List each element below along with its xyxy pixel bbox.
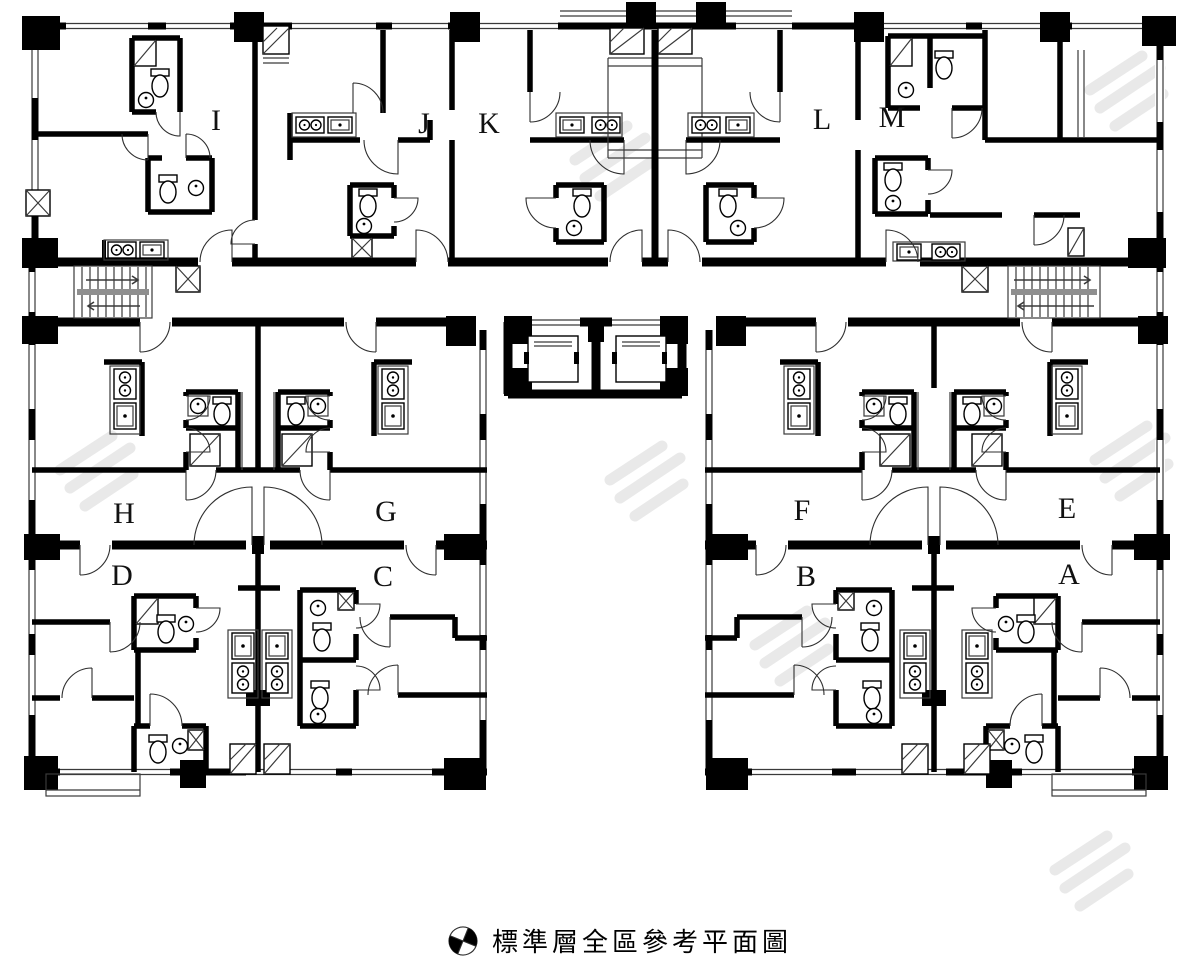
- kitchen-sink-icon: [382, 403, 404, 429]
- toilet-icon: [573, 189, 591, 217]
- caption-text: 標準層全區參考平面圖: [492, 928, 792, 957]
- kitchen-sink-icon: [140, 242, 164, 258]
- caption: 標準層全區參考平面圖: [445, 923, 792, 959]
- toilet-icon: [863, 681, 881, 709]
- stove-icon: [266, 663, 288, 693]
- toilet-icon: [1017, 615, 1035, 643]
- kitchen-sink-icon: [266, 633, 288, 659]
- sink-icon: [731, 221, 746, 236]
- sink-icon: [999, 617, 1014, 632]
- unit-label-b: B: [796, 560, 816, 593]
- kitchen-sink-icon: [904, 633, 926, 659]
- kitchen-sink-icon: [726, 117, 750, 133]
- elevator-car: [528, 336, 578, 382]
- stove-icon: [788, 369, 810, 399]
- unit-label-e: E: [1058, 492, 1076, 525]
- unit-b-interior: [705, 545, 954, 774]
- kitchen-sink-icon: [1056, 403, 1078, 429]
- unit-j-interior: [263, 26, 448, 262]
- toilet-icon: [149, 735, 167, 763]
- toilet-icon: [861, 623, 879, 651]
- kitchen-sink-icon: [560, 117, 584, 133]
- unit-label-f: F: [794, 494, 811, 527]
- sink-icon: [173, 739, 188, 754]
- duct-right: [962, 266, 988, 292]
- stove-icon: [232, 663, 254, 693]
- unit-label-d: D: [111, 559, 133, 592]
- stairs-left: [74, 266, 152, 318]
- toilet-icon: [213, 397, 231, 425]
- toilet-icon: [151, 69, 169, 97]
- unit-label-m: M: [879, 101, 906, 134]
- toilet-icon: [935, 51, 953, 79]
- unit-h-interior: [32, 322, 300, 545]
- duct-left: [176, 266, 200, 292]
- toilet-icon: [1025, 735, 1043, 763]
- unit-d-interior: [32, 545, 280, 796]
- kl-vent-zone: [608, 28, 702, 262]
- sink-icon: [139, 93, 154, 108]
- sink-icon: [867, 601, 882, 616]
- stove-icon: [692, 117, 720, 133]
- sink-icon: [899, 83, 914, 98]
- kitchen-sink-icon: [114, 403, 136, 429]
- toilet-icon: [884, 163, 902, 191]
- unit-label-h: H: [113, 497, 135, 530]
- kitchen-sink-icon: [788, 403, 810, 429]
- sink-icon: [867, 709, 882, 724]
- unit-label-i: I: [211, 104, 221, 137]
- sink-icon: [311, 399, 326, 414]
- stove-icon: [1056, 369, 1078, 399]
- sink-icon: [311, 709, 326, 724]
- sink-icon: [886, 196, 901, 211]
- toilet-icon: [963, 397, 981, 425]
- toilet-icon: [311, 681, 329, 709]
- unit-label-c: C: [373, 560, 393, 593]
- sink-icon: [987, 399, 1002, 414]
- unit-label-l: L: [813, 103, 831, 136]
- toilet-icon: [889, 397, 907, 425]
- north-compass-icon: [445, 923, 481, 959]
- floor-plan-canvas: I J K L M H G F E D C B A 標準層全區參考平面圖: [0, 0, 1200, 967]
- stairs-right: [1008, 266, 1100, 318]
- toilet-icon: [313, 623, 331, 651]
- sink-icon: [179, 617, 194, 632]
- stove-icon: [382, 369, 404, 399]
- stove-icon: [114, 369, 136, 399]
- sink-icon: [867, 399, 882, 414]
- toilet-icon: [359, 189, 377, 217]
- unit-k-interior: [452, 30, 642, 262]
- stove-icon: [592, 117, 620, 133]
- sink-icon: [189, 181, 204, 196]
- stove-icon: [932, 244, 960, 260]
- toilet-icon: [719, 189, 737, 217]
- toilet-icon: [157, 615, 175, 643]
- unit-i-interior: [26, 30, 255, 262]
- sink-icon: [357, 219, 372, 234]
- unit-label-k: K: [478, 107, 500, 140]
- unit-label-a: A: [1058, 558, 1080, 591]
- kitchen-sink-icon: [966, 633, 988, 659]
- elevator-car: [616, 336, 666, 382]
- sink-icon: [567, 221, 582, 236]
- stove-icon: [108, 242, 136, 258]
- stove-icon: [904, 663, 926, 693]
- stove-icon: [296, 117, 324, 133]
- elevator-core: [504, 316, 688, 396]
- sink-icon: [1005, 739, 1020, 754]
- toilet-icon: [159, 175, 177, 203]
- unit-label-j: J: [418, 107, 430, 140]
- kitchen-sink-icon: [232, 633, 254, 659]
- sink-icon: [191, 399, 206, 414]
- stove-icon: [966, 663, 988, 693]
- kitchen-sink-icon: [328, 117, 352, 133]
- sink-icon: [311, 601, 326, 616]
- toilet-icon: [287, 397, 305, 425]
- floor-plan-page: I J K L M H G F E D C B A 標準層全區參考平面圖: [0, 0, 1200, 967]
- unit-l-interior: [668, 30, 858, 262]
- unit-label-g: G: [375, 495, 397, 528]
